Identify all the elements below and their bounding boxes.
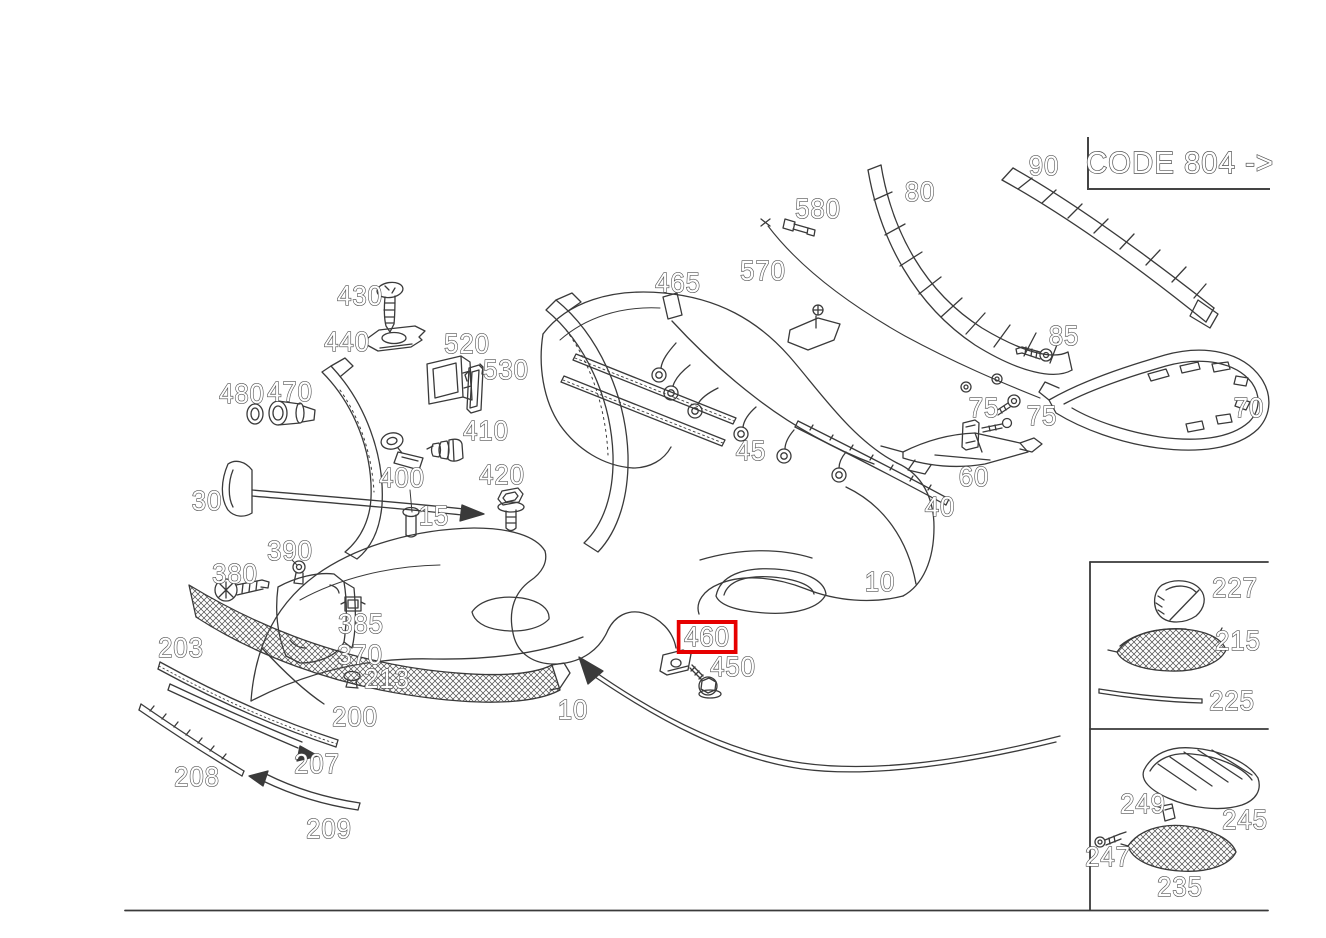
part-label-465[interactable]: 465	[655, 270, 701, 296]
part-label-213[interactable]: 213	[364, 666, 410, 692]
part-label-245[interactable]: 245	[1222, 807, 1268, 833]
part-label-410[interactable]: 410	[463, 418, 509, 444]
code-label: CODE 804 ->	[1085, 145, 1273, 181]
part-label-227[interactable]: 227	[1212, 575, 1258, 601]
part-label-480[interactable]: 480	[219, 381, 265, 407]
part-label-235[interactable]: 235	[1157, 874, 1203, 900]
part-label-247[interactable]: 247	[1085, 844, 1131, 870]
part-label-400[interactable]: 400	[379, 465, 425, 491]
part-label-10-right[interactable]: 10	[865, 569, 896, 595]
part-label-209[interactable]: 209	[306, 816, 352, 842]
part-label-203[interactable]: 203	[158, 635, 204, 661]
part-label-450[interactable]: 450	[710, 654, 756, 680]
part-label-440[interactable]: 440	[324, 329, 370, 355]
part-label-385[interactable]: 385	[338, 611, 384, 637]
part-label-85[interactable]: 85	[1049, 323, 1080, 349]
part-label-15[interactable]: 15	[419, 503, 450, 529]
part-label-430[interactable]: 430	[337, 283, 383, 309]
part-label-40[interactable]: 40	[925, 494, 956, 520]
part-label-420[interactable]: 420	[479, 462, 525, 488]
part-label-75-right[interactable]: 75	[1027, 403, 1058, 429]
part-label-80[interactable]: 80	[905, 179, 936, 205]
part-label-207[interactable]: 207	[294, 751, 340, 777]
part-label-90[interactable]: 90	[1029, 153, 1060, 179]
part-label-380[interactable]: 380	[212, 561, 258, 587]
part-label-249[interactable]: 249	[1120, 791, 1166, 817]
part-label-215[interactable]: 215	[1215, 628, 1261, 654]
part-label-75-left[interactable]: 75	[969, 395, 1000, 421]
part-label-580[interactable]: 580	[795, 196, 841, 222]
part-label-390[interactable]: 390	[267, 538, 313, 564]
part-label-200[interactable]: 200	[332, 704, 378, 730]
part-label-570[interactable]: 570	[740, 258, 786, 284]
part-label-10-left[interactable]: 10	[558, 697, 589, 723]
part-label-470[interactable]: 470	[267, 379, 313, 405]
part-label-60[interactable]: 60	[959, 464, 990, 490]
code-box: CODE 804 ->	[1087, 137, 1270, 190]
part-label-460-highlighted[interactable]: 460	[677, 620, 737, 654]
part-label-70[interactable]: 70	[1234, 395, 1265, 421]
part-label-530[interactable]: 530	[483, 357, 529, 383]
part-label-45[interactable]: 45	[736, 438, 767, 464]
part-label-30[interactable]: 30	[192, 488, 223, 514]
part-label-225[interactable]: 225	[1209, 688, 1255, 714]
parts-diagram-page: 4304405205304804704104004201530390380385…	[0, 0, 1326, 938]
part-label-208[interactable]: 208	[174, 764, 220, 790]
